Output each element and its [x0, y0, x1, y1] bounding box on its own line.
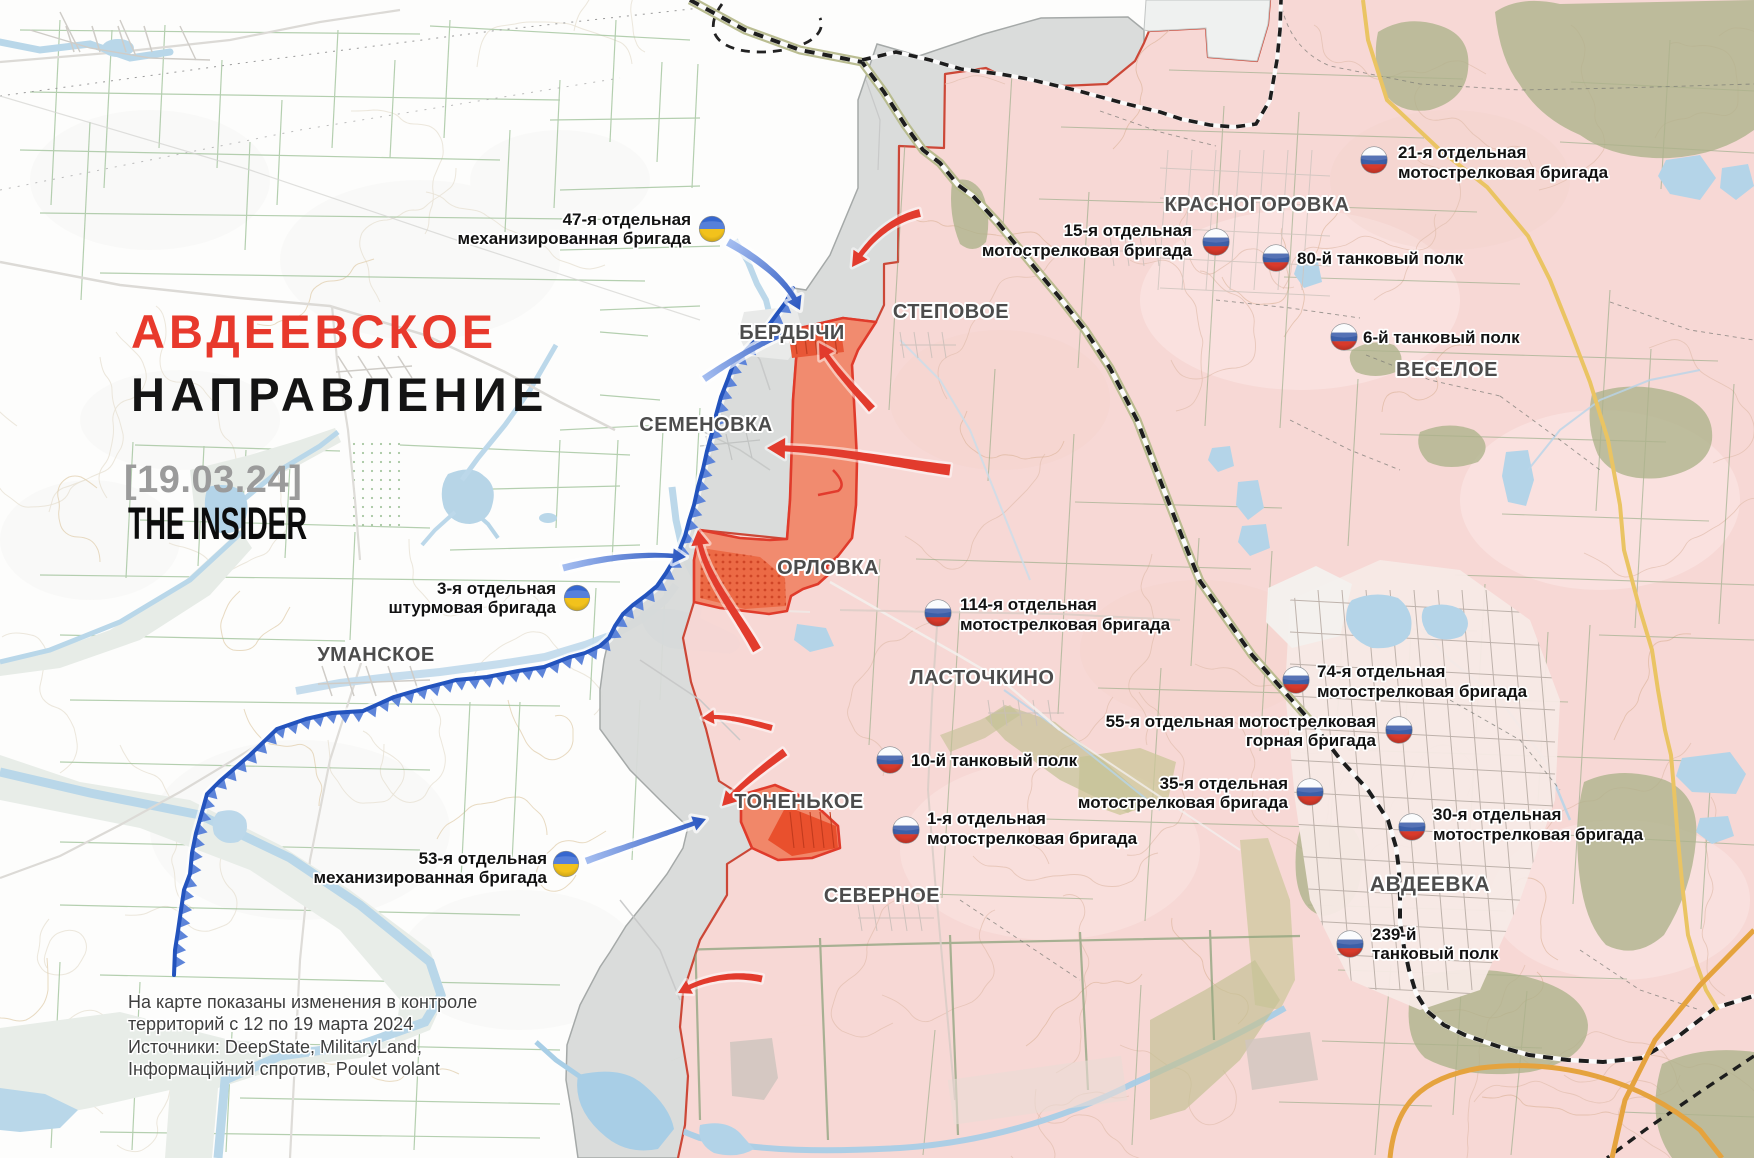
svg-text:80-й танковый полк: 80-й танковый полк [1297, 249, 1464, 268]
svg-text:БЕРДЫЧИ: БЕРДЫЧИ [739, 322, 845, 344]
svg-text:ЛАСТОЧКИНО: ЛАСТОЧКИНО [910, 667, 1055, 689]
svg-text:УМАНСКОЕ: УМАНСКОЕ [317, 644, 435, 666]
svg-text:ВЕСЕЛОЕ: ВЕСЕЛОЕ [1396, 359, 1498, 381]
svg-text:СЕМЕНОВКА: СЕМЕНОВКА [639, 414, 772, 436]
svg-text:10-й танковый полк: 10-й танковый полк [911, 751, 1078, 770]
svg-text:6-й танковый полк: 6-й танковый полк [1363, 328, 1520, 347]
svg-text:[19.03.24]: [19.03.24] [124, 459, 302, 501]
svg-text:СТЕПОВОЕ: СТЕПОВОЕ [893, 301, 1009, 323]
svg-text:СЕВЕРНОЕ: СЕВЕРНОЕ [824, 885, 940, 907]
svg-text:АВДЕЕВКА: АВДЕЕВКА [1370, 873, 1490, 896]
svg-text:THE INSIDER: THE INSIDER [128, 500, 307, 550]
svg-text:ТОНЕНЬКОЕ: ТОНЕНЬКОЕ [734, 791, 863, 813]
svg-text:ОРЛОВКА: ОРЛОВКА [777, 557, 879, 579]
svg-text:КРАСНОГОРОВКА: КРАСНОГОРОВКА [1164, 194, 1349, 216]
svg-text:АВДЕЕВСКОЕ: АВДЕЕВСКОЕ [131, 305, 497, 358]
svg-text:НАПРАВЛЕНИЕ: НАПРАВЛЕНИЕ [131, 368, 549, 421]
